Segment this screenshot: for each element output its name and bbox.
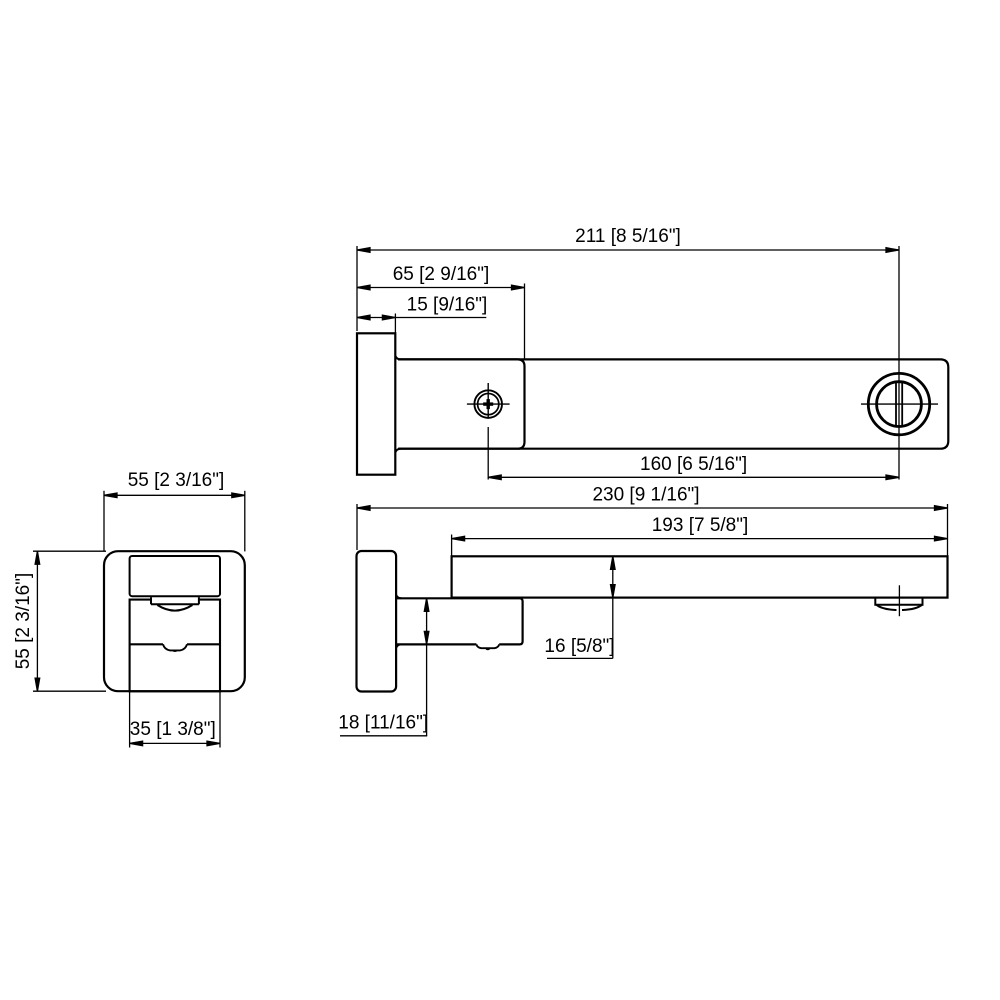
- svg-text:15 [9/16"]: 15 [9/16"]: [407, 295, 488, 316]
- svg-text:55 [2 3/16"]: 55 [2 3/16"]: [13, 573, 34, 670]
- svg-text:211 [8 5/16"]: 211 [8 5/16"]: [575, 226, 681, 247]
- svg-text:35 [1 3/8"]: 35 [1 3/8"]: [130, 719, 216, 740]
- svg-text:160 [6 5/16"]: 160 [6 5/16"]: [640, 454, 747, 475]
- svg-text:193 [7 5/8"]: 193 [7 5/8"]: [652, 515, 749, 536]
- svg-text:18 [11/16"]: 18 [11/16"]: [338, 713, 428, 734]
- svg-text:55 [2 3/16"]: 55 [2 3/16"]: [128, 470, 225, 491]
- svg-text:65 [2 9/16"]: 65 [2 9/16"]: [393, 264, 490, 285]
- svg-text:230 [9 1/16"]: 230 [9 1/16"]: [592, 485, 699, 506]
- svg-text:16 [5/8"]: 16 [5/8"]: [544, 636, 614, 657]
